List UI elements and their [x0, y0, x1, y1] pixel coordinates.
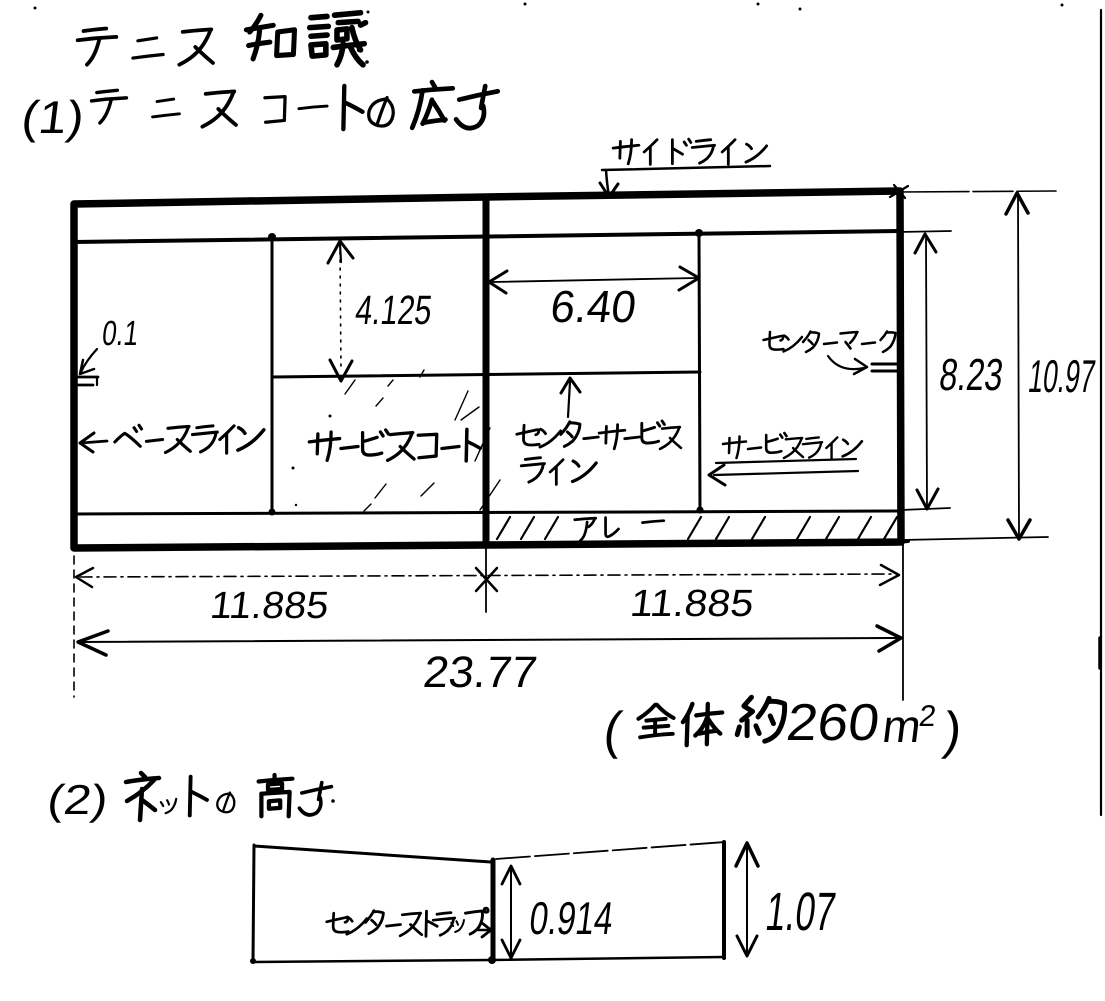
- svg-text:(: (: [601, 702, 626, 760]
- svg-text:0.914: 0.914: [527, 892, 616, 944]
- svg-text:260: 260: [784, 694, 883, 752]
- svg-text:(1): (1): [19, 91, 87, 143]
- svg-text:6.40: 6.40: [548, 281, 639, 332]
- svg-text:8.23: 8.23: [937, 349, 1006, 400]
- svg-text:11.885: 11.885: [208, 584, 331, 627]
- svg-text:(2): (2): [45, 776, 111, 823]
- svg-text:1.07: 1.07: [763, 882, 839, 942]
- svg-text:0.1: 0.1: [100, 314, 141, 353]
- svg-text:): ): [941, 702, 965, 760]
- svg-text:23.77: 23.77: [421, 648, 540, 697]
- svg-text:2: 2: [917, 700, 938, 733]
- svg-text:11.885: 11.885: [628, 582, 756, 625]
- svg-text:4.125: 4.125: [353, 287, 435, 333]
- svg-text:10.97: 10.97: [1026, 350, 1098, 402]
